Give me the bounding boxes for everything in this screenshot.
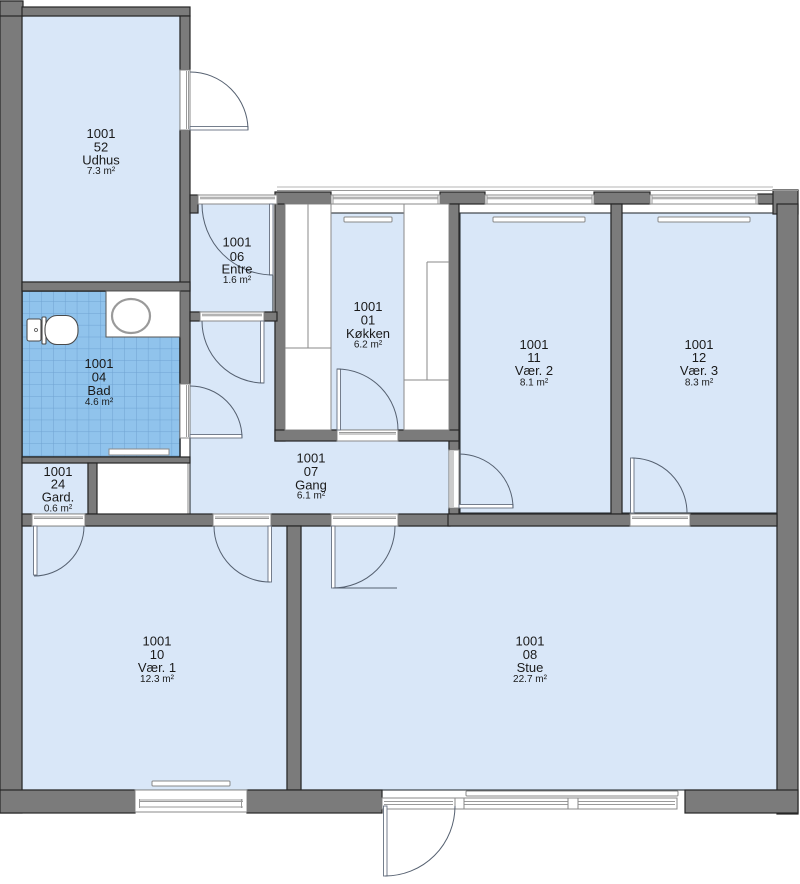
svg-text:4.6 m²: 4.6 m²: [85, 397, 114, 408]
svg-text:1.6 m²: 1.6 m²: [223, 275, 252, 286]
svg-text:8.3 m²: 8.3 m²: [685, 378, 714, 389]
svg-text:6.2 m²: 6.2 m²: [354, 340, 383, 351]
svg-text:22.7 m²: 22.7 m²: [513, 674, 548, 685]
svg-text:8.1 m²: 8.1 m²: [520, 378, 549, 389]
svg-text:Vær. 3: Vær. 3: [680, 363, 718, 378]
svg-text:1001: 1001: [223, 235, 252, 250]
svg-text:Vær. 2: Vær. 2: [515, 363, 553, 378]
svg-text:7.3 m²: 7.3 m²: [87, 166, 116, 177]
svg-text:Stue: Stue: [517, 660, 544, 675]
svg-text:0.6 m²: 0.6 m²: [44, 504, 73, 515]
svg-text:Bad: Bad: [87, 383, 110, 398]
svg-text:6.1 m²: 6.1 m²: [297, 491, 326, 502]
svg-text:Gard.: Gard.: [42, 490, 75, 505]
svg-text:Vær. 1: Vær. 1: [138, 660, 176, 675]
svg-text:12.3 m²: 12.3 m²: [140, 674, 175, 685]
